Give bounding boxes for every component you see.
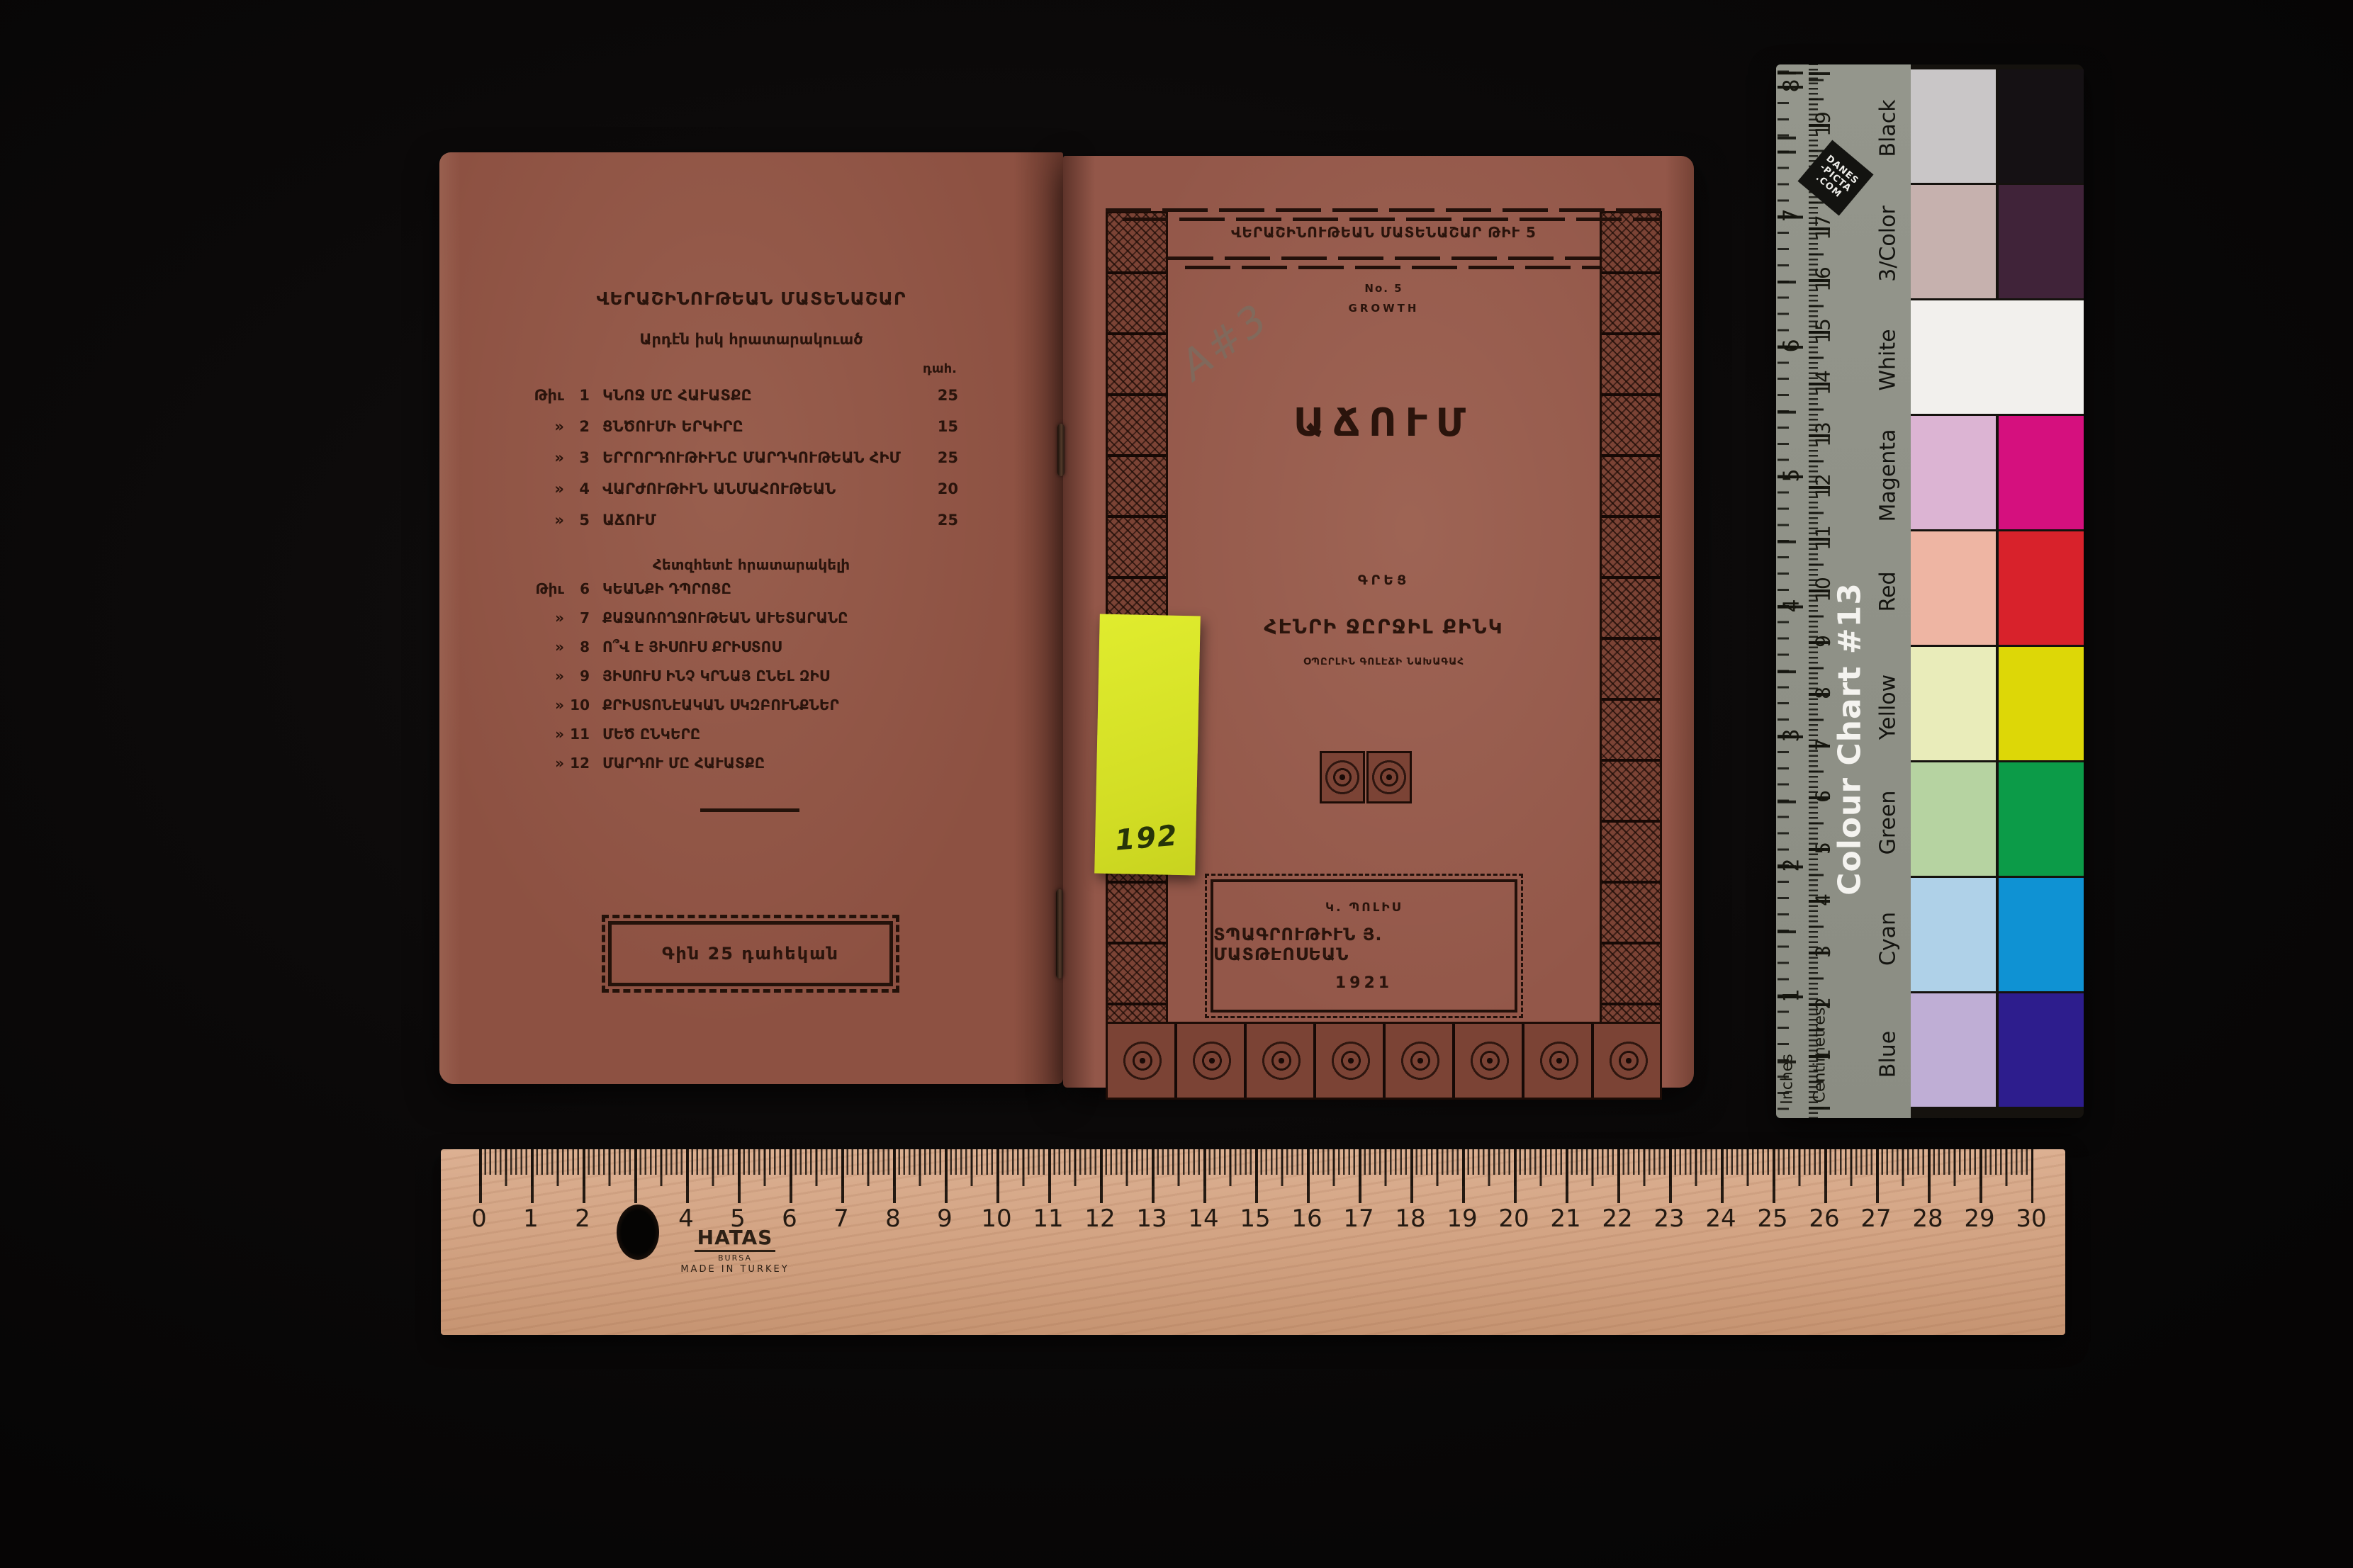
item-mark: » xyxy=(524,667,564,684)
item-number: 8 xyxy=(564,638,590,655)
item-number: 1 xyxy=(564,387,590,404)
rose-ornament-pair xyxy=(1320,751,1412,803)
item-title: ՑՆԾՈՒՄԻ ԵՐԿԻՐԸ xyxy=(602,418,923,435)
inch-number: 5 xyxy=(1780,469,1804,483)
chart-row xyxy=(1911,185,2084,298)
published-item: »5ԱՃՈՒՄ25 xyxy=(524,512,958,543)
chart-row-label: Cyan xyxy=(1876,912,1901,966)
published-label: Արդէն իսկ հրատարակուած xyxy=(439,331,1063,348)
colour-calibration-chart: 87654321 19181716151413121110987654321 D… xyxy=(1776,64,2084,1118)
chart-row xyxy=(1911,416,2084,529)
upcoming-item: »12ՄԱՐԴՈՒ ՄԸ ՀԱՒԱՏՔԸ xyxy=(524,755,958,784)
item-mark: Թիւ xyxy=(524,387,564,404)
ruler-number: 16 xyxy=(1291,1205,1322,1233)
upcoming-item: »7ՔԱՋԱՌՈՂՋՈՒԹԵԱՆ ԱՒԵՏԱՐԱՆԸ xyxy=(524,609,958,638)
ruler-number: 18 xyxy=(1395,1205,1425,1233)
ruler-number: 15 xyxy=(1240,1205,1270,1233)
item-number: 9 xyxy=(564,667,590,684)
ruler-number: 7 xyxy=(833,1205,849,1233)
sticky-note: 192 xyxy=(1094,614,1201,876)
published-item: Թիւ1ԿՆՈՋ ՄԸ ՀԱՒԱՏՔԸ25 xyxy=(524,387,958,418)
patch-dark-yellow xyxy=(1999,647,2084,760)
ruler-number: 28 xyxy=(1912,1205,1943,1233)
ruler-number: 10 xyxy=(981,1205,1011,1233)
upcoming-rows: Թիւ6ԿԵԱՆՔԻ ԴՊՐՈՑԸ»7ՔԱՋԱՌՈՂՋՈՒԹԵԱՆ ԱՒԵՏԱՐ… xyxy=(524,580,958,784)
centimetres-label: Centimetres xyxy=(1812,1008,1829,1103)
item-mark: » xyxy=(524,418,564,435)
item-number: 6 xyxy=(564,580,590,597)
upcoming-item: »8Ո՞Վ Է ՅԻՍՈՒՍ ՔՐԻՍՏՈՍ xyxy=(524,638,958,667)
item-title: ԿԵԱՆՔԻ ԴՊՐՈՑԸ xyxy=(602,580,958,597)
chart-row xyxy=(1911,531,2084,645)
item-number: 11 xyxy=(564,726,590,743)
item-number: 4 xyxy=(564,480,590,497)
item-number: 3 xyxy=(564,449,590,466)
item-title: ՔԱՋԱՌՈՂՋՈՒԹԵԱՆ ԱՒԵՏԱՐԱՆԸ xyxy=(602,609,958,626)
author-subtitle: ՕՊԸՐԼԻՆ ԳՈԼԷՃԻ ՆԱԽԱԳԱՀ xyxy=(1168,656,1600,667)
ruler-number: 9 xyxy=(937,1205,953,1233)
item-price: 25 xyxy=(923,387,958,404)
ruler-number: 1 xyxy=(523,1205,539,1233)
cm-number: 16 xyxy=(1812,266,1835,292)
item-number: 12 xyxy=(564,755,590,772)
inch-number: 4 xyxy=(1780,599,1804,612)
ruler-number: 8 xyxy=(885,1205,901,1233)
patch-dark-magenta xyxy=(1999,416,2084,529)
ruler-number: 14 xyxy=(1188,1205,1218,1233)
ruler-number: 19 xyxy=(1447,1205,1477,1233)
chart-row xyxy=(1911,762,2084,876)
ornamental-border-bottom xyxy=(1106,1022,1662,1100)
chart-title: Colour Chart #13 xyxy=(1832,582,1868,896)
item-mark: » xyxy=(524,449,564,466)
ruler-number: 12 xyxy=(1084,1205,1115,1233)
cm-number: 11 xyxy=(1812,525,1835,551)
ruler-number: 23 xyxy=(1653,1205,1684,1233)
item-price: 25 xyxy=(923,449,958,466)
item-number: 5 xyxy=(564,512,590,529)
item-price: 25 xyxy=(923,512,958,529)
chart-row-label: Yellow xyxy=(1876,675,1901,740)
published-item: »4ՎԱՐԺՈՒԹԻՒՆ ԱՆՄԱՀՈՒԹԵԱՆ20 xyxy=(524,480,958,512)
cm-number: 14 xyxy=(1812,370,1835,395)
chart-row xyxy=(1911,878,2084,991)
item-title: ԱՃՈՒՄ xyxy=(602,512,923,529)
staple xyxy=(1056,889,1063,978)
patch-dark-blue xyxy=(1999,993,2084,1107)
item-title: ՎԱՐԺՈՒԹԻՒՆ ԱՆՄԱՀՈՒԹԵԱՆ xyxy=(602,480,923,497)
item-title: ԿՆՈՋ ՄԸ ՀԱՒԱՏՔԸ xyxy=(602,387,923,404)
cm-number: 19 xyxy=(1812,111,1835,137)
patch-dark-red xyxy=(1999,531,2084,645)
inch-number: 1 xyxy=(1780,988,1804,1002)
chart-row-label: Magenta xyxy=(1876,429,1901,522)
ruler-number: 13 xyxy=(1136,1205,1167,1233)
item-mark: Թիւ xyxy=(524,580,564,597)
price-box: Գին 25 դահեկան xyxy=(608,921,893,986)
published-item: »2ՑՆԾՈՒՄԻ ԵՐԿԻՐԸ15 xyxy=(524,418,958,449)
price-box-text: Գին 25 դահեկան xyxy=(662,944,839,964)
ruler-cm-ticks xyxy=(479,1149,2033,1203)
ruler-number: 21 xyxy=(1550,1205,1580,1233)
cm-number: 3 xyxy=(1812,945,1835,958)
cm-number: 17 xyxy=(1812,215,1835,240)
published-rows: Թիւ1ԿՆՈՋ ՄԸ ՀԱՒԱՏՔԸ25»2ՑՆԾՈՒՄԻ ԵՐԿԻՐԸ15»… xyxy=(524,387,958,543)
inch-number: 2 xyxy=(1780,859,1804,872)
item-title: ՅԻՍՈՒՍ ԻՆՉ ԿՐՆԱՅ ԸՆԵԼ ԶԻՍ xyxy=(602,667,958,684)
book-back-cover: ՎԵՐԱՇԻՆՈՒԹԵԱՆ ՄԱՏԵՆԱՇԱՐ Արդէն իսկ հրատար… xyxy=(439,152,1063,1084)
sticky-note-number: 192 xyxy=(1113,819,1179,857)
chart-row-label: Black xyxy=(1876,99,1901,157)
inch-ticks-major xyxy=(1778,64,1803,1118)
upcoming-item: »9ՅԻՍՈՒՍ ԻՆՉ ԿՐՆԱՅ ԸՆԵԼ ԶԻՍ xyxy=(524,667,958,696)
item-title: Ո՞Վ Է ՅԻՍՈՒՍ ՔՐԻՍՏՈՍ xyxy=(602,638,958,655)
ruler-number: 27 xyxy=(1860,1205,1891,1233)
publication-year: 1921 xyxy=(1335,974,1393,992)
wrote-label: ԳՐԵՑ xyxy=(1168,573,1600,588)
patch-dark-black xyxy=(1999,69,2084,183)
inch-number: 3 xyxy=(1780,728,1804,742)
series-line: ՎԵՐԱՇԻՆՈՒԹԵԱՆ ՄԱՏԵՆԱՇԱՐ ԹԻՒ 5 xyxy=(1168,224,1600,241)
patch-light-blue xyxy=(1911,993,1996,1107)
patch-light-magenta xyxy=(1911,416,1996,529)
patch-light-3/color xyxy=(1911,185,1996,298)
upcoming-list: Թիւ6ԿԵԱՆՔԻ ԴՊՐՈՑԸ»7ՔԱՋԱՌՈՂՋՈՒԹԵԱՆ ԱՒԵՏԱՐ… xyxy=(524,580,958,784)
item-title: ՄԵԾ ԸՆԿԵՐԸ xyxy=(602,726,958,743)
cm-number: 15 xyxy=(1812,318,1835,344)
cm-number: 13 xyxy=(1812,422,1835,447)
ruler-number: 25 xyxy=(1757,1205,1787,1233)
ornamental-border-right xyxy=(1600,211,1662,1100)
item-mark: » xyxy=(524,512,564,529)
publisher-city: Կ. ՊՈԼԻՍ xyxy=(1325,901,1403,915)
divider-rule xyxy=(700,808,799,812)
ruler-number: 26 xyxy=(1809,1205,1839,1233)
chart-row-label: 3/Color xyxy=(1876,206,1901,283)
ruler-number: 2 xyxy=(575,1205,590,1233)
ruler-brand: HATAS xyxy=(695,1226,776,1252)
photo-stage: ՎԵՐԱՇԻՆՈՒԹԵԱՆ ՄԱՏԵՆԱՇԱՐ Արդէն իսկ հրատար… xyxy=(0,0,2353,1568)
inch-number: 8 xyxy=(1780,79,1804,92)
chart-row xyxy=(1911,69,2084,183)
upcoming-item: »10ՔՐԻՍՏՈՆԷԱԿԱՆ ՍԿԶԲՈՒՆՔՆԵՐ xyxy=(524,696,958,726)
dashed-rule-mid xyxy=(1168,256,1600,269)
chart-patch-rows xyxy=(1911,69,2084,1109)
item-mark: » xyxy=(524,609,564,626)
ruler-number: 11 xyxy=(1033,1205,1063,1233)
item-mark: » xyxy=(524,638,564,655)
item-mark: » xyxy=(524,755,564,772)
chart-row-label: Blue xyxy=(1876,1031,1901,1078)
wooden-ruler: 0123456789101112131415161718192021222324… xyxy=(441,1149,2065,1335)
inch-number: 7 xyxy=(1780,209,1804,222)
pencil-annotation: A#3 xyxy=(1153,281,1296,403)
upcoming-item: Թիւ6ԿԵԱՆՔԻ ԴՊՐՈՑԸ xyxy=(524,580,958,609)
patch-light-cyan xyxy=(1911,878,1996,991)
published-item: »3ԵՐՐՈՐԴՈՒԹԻՒՆԸ ՄԱՐԴԿՈՒԹԵԱՆ ՀԻՄ25 xyxy=(524,449,958,480)
chart-row xyxy=(1911,300,2084,414)
item-number: 2 xyxy=(564,418,590,435)
patch-dark-green xyxy=(1999,762,2084,876)
ruler-number: 17 xyxy=(1343,1205,1374,1233)
patch-dark-cyan xyxy=(1999,878,2084,991)
ruler-number: 0 xyxy=(471,1205,487,1233)
item-price: 20 xyxy=(923,480,958,497)
item-title: ՄԱՐԴՈՒ ՄԸ ՀԱՒԱՏՔԸ xyxy=(602,755,958,772)
item-number: 7 xyxy=(564,609,590,626)
cm-number: 12 xyxy=(1812,473,1835,499)
item-mark: » xyxy=(524,480,564,497)
chart-row xyxy=(1911,647,2084,760)
ruler-sub-brand: BURSA xyxy=(675,1253,795,1263)
rose-ornament-icon xyxy=(1366,751,1412,803)
ruler-number: 22 xyxy=(1602,1205,1632,1233)
upcoming-item: »11ՄԵԾ ԸՆԿԵՐԸ xyxy=(524,726,958,755)
chart-row-label: Red xyxy=(1876,571,1901,611)
item-mark: » xyxy=(524,726,564,743)
item-title: ԵՐՐՈՐԴՈՒԹԻՒՆԸ ՄԱՐԴԿՈՒԹԵԱՆ ՀԻՄ xyxy=(602,449,923,466)
series-header: ՎԵՐԱՇԻՆՈՒԹԵԱՆ ՄԱՏԵՆԱՇԱՐ xyxy=(439,288,1063,309)
price-column-header: դահ. xyxy=(524,361,958,387)
published-list: դահ. Թիւ1ԿՆՈՋ ՄԸ ՀԱՒԱՏՔԸ25»2ՑՆԾՈՒՄԻ ԵՐԿԻ… xyxy=(524,361,958,543)
inches-label: Inches xyxy=(1779,1054,1797,1104)
patch-light-red xyxy=(1911,531,1996,645)
ruler-number: 29 xyxy=(1964,1205,1994,1233)
upcoming-label: Հետզհետէ հրատարակելի xyxy=(439,556,1063,573)
chart-scale-band: 87654321 19181716151413121110987654321 D… xyxy=(1776,64,1911,1118)
publisher-name: ՏՊԱԳՐՈՒԹԻՒՆ Յ. ՄԱՏԹԷՈՍԵԱՆ xyxy=(1213,925,1515,964)
patch-light-green xyxy=(1911,762,1996,876)
ruler-number: 30 xyxy=(2016,1205,2046,1233)
item-mark: » xyxy=(524,696,564,714)
publisher-box: Կ. ՊՈԼԻՍ ՏՊԱԳՐՈՒԹԻՒՆ Յ. ՄԱՏԹԷՈՍԵԱՆ 1921 xyxy=(1211,879,1517,1013)
patch-white xyxy=(1911,300,2084,414)
dashed-rule-top xyxy=(1106,208,1662,221)
ruler-number: 24 xyxy=(1705,1205,1736,1233)
inch-number: 6 xyxy=(1780,339,1804,352)
item-price: 15 xyxy=(923,418,958,435)
number-line: No. 5 xyxy=(1168,282,1600,295)
ruler-brand-block: HATAS BURSA MADE IN TURKEY xyxy=(675,1226,795,1275)
chart-row xyxy=(1911,993,2084,1107)
cover-title: ԱՃՈՒՄ xyxy=(1168,400,1600,445)
chart-row-label: White xyxy=(1876,329,1901,390)
staple xyxy=(1057,424,1065,476)
ruler-hole xyxy=(617,1205,659,1260)
author-name: ՀԷՆՐԻ ՋԸՐՋԻԼ ՔԻՆԿ xyxy=(1168,615,1600,638)
ruler-number: 20 xyxy=(1498,1205,1529,1233)
item-number: 10 xyxy=(564,696,590,714)
patch-light-black xyxy=(1911,69,1996,183)
patch-light-yellow xyxy=(1911,647,1996,760)
rose-ornament-icon xyxy=(1320,751,1365,803)
patch-dark-3/color xyxy=(1999,185,2084,298)
chart-row-label: Green xyxy=(1876,791,1901,855)
ruler-made-in: MADE IN TURKEY xyxy=(675,1264,795,1275)
item-title: ՔՐԻՍՏՈՆԷԱԿԱՆ ՍԿԶԲՈՒՆՔՆԵՐ xyxy=(602,696,958,714)
